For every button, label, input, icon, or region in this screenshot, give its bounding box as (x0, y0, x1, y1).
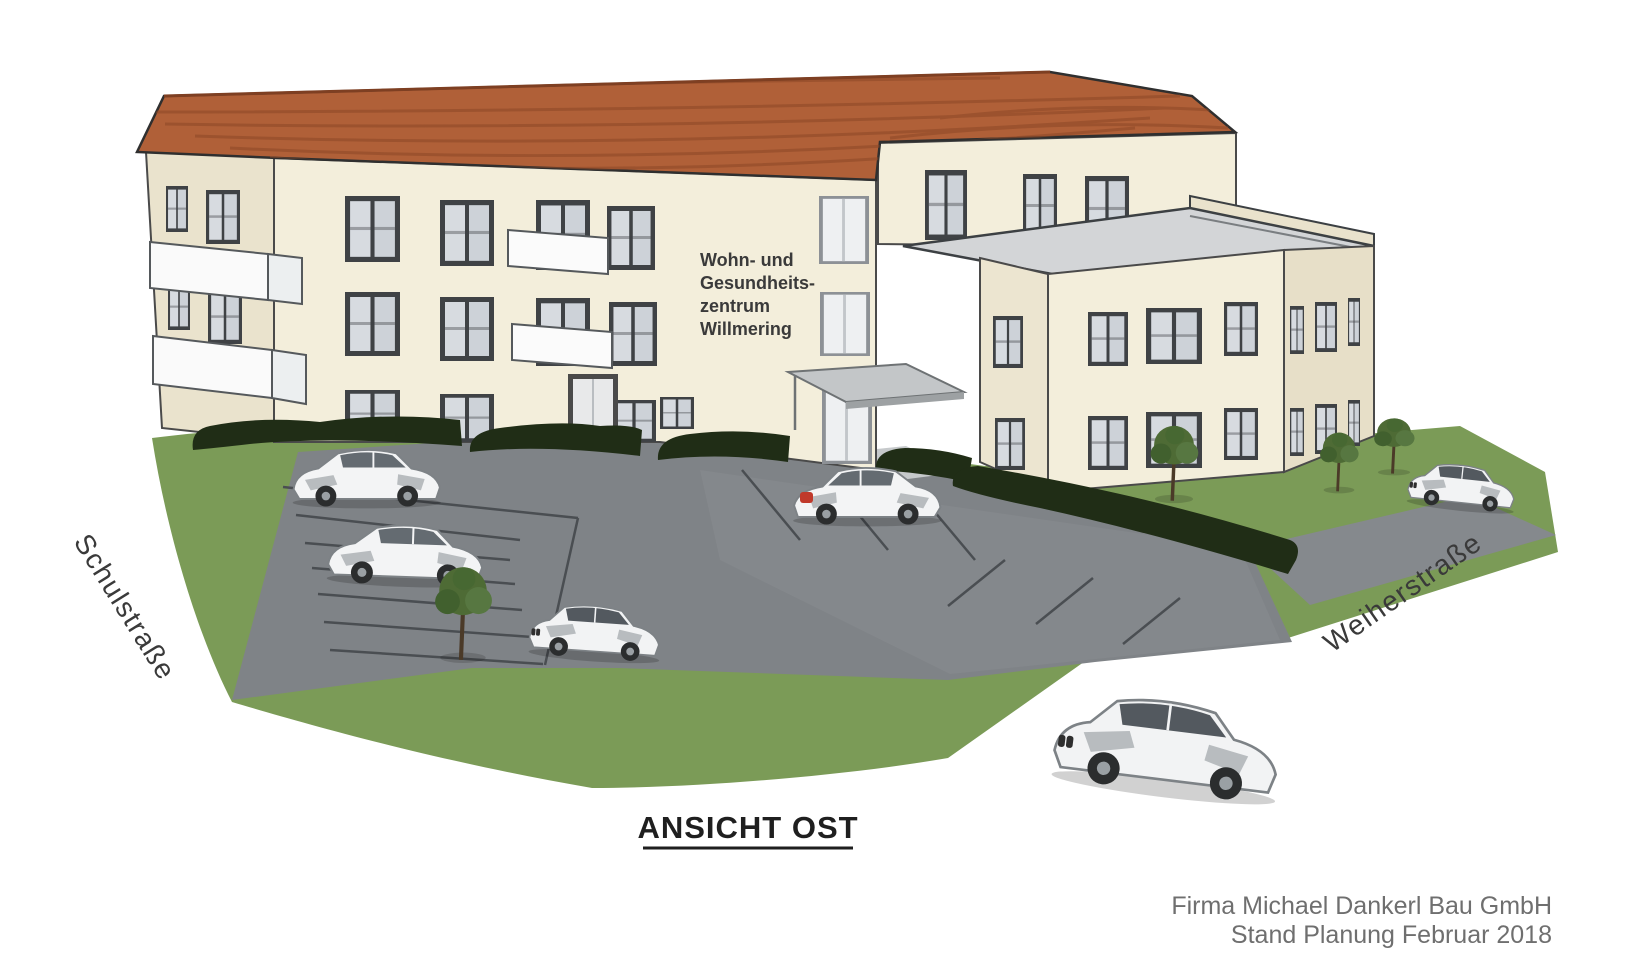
stairwell-window-upper (819, 196, 869, 264)
french-balcony-upper (508, 230, 608, 274)
street-label-left: Schulstraße (68, 528, 182, 685)
rendering-page: Wohn- und Gesundheits- zentrum Willmerin… (0, 0, 1650, 976)
building-label-line2: Gesundheits- (700, 273, 815, 293)
building-label-line1: Wohn- und (700, 250, 794, 270)
architectural-rendering-svg: Wohn- und Gesundheits- zentrum Willmerin… (0, 0, 1650, 976)
building-label-line4: Willmering (700, 319, 792, 339)
french-balcony-lower (512, 324, 612, 368)
view-caption: ANSICHT OST (637, 810, 858, 845)
car-street-foreground (1050, 689, 1285, 811)
balcony-upper-return (268, 254, 302, 304)
credit-line-1: Firma Michael Dankerl Bau GmbH (1171, 892, 1552, 920)
building-label-line3: zentrum (700, 296, 770, 316)
stairwell-window-middle (820, 292, 870, 356)
credit-line-2: Stand Planung Februar 2018 (1231, 921, 1552, 949)
flat-roof-block (903, 196, 1374, 492)
balcony-lower-return (272, 350, 306, 404)
